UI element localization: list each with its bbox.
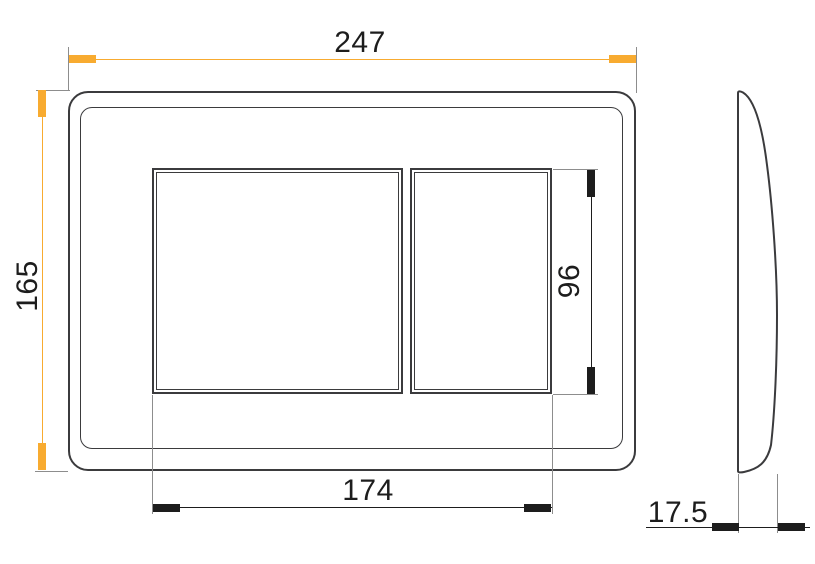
arrowhead-down-icon	[38, 443, 46, 470]
arrowhead-up-icon	[38, 90, 46, 117]
button-left-inner-line	[156, 172, 399, 390]
button-right-inner-line	[414, 172, 548, 390]
dim-label-overall-height: 165	[13, 236, 43, 336]
arrowhead-down-icon	[587, 367, 595, 394]
extension-line-left	[152, 395, 153, 514]
arrowhead-left-icon	[69, 55, 96, 63]
side-profile-outline	[738, 91, 777, 472]
arrowhead-inward-left-icon	[778, 523, 805, 531]
extension-line-bottom	[35, 471, 68, 472]
arrowhead-right-icon	[524, 504, 551, 512]
dim-label-thickness: 17.5	[628, 498, 728, 528]
side-view	[728, 85, 788, 480]
extension-line-right	[552, 395, 553, 514]
arrowhead-left-icon	[153, 504, 180, 512]
extension-line-right	[636, 47, 637, 93]
dimension-line	[591, 170, 592, 394]
arrowhead-right-icon	[609, 55, 636, 63]
technical-drawing-canvas: 247 165 96 174 17.5	[0, 0, 815, 564]
dimension-line	[153, 507, 552, 508]
dim-label-buttons-width: 174	[318, 476, 418, 506]
dim-label-button-height: 96	[555, 251, 585, 311]
dim-label-overall-width: 247	[310, 28, 410, 58]
extension-line-left	[68, 47, 69, 91]
arrowhead-up-icon	[587, 170, 595, 197]
